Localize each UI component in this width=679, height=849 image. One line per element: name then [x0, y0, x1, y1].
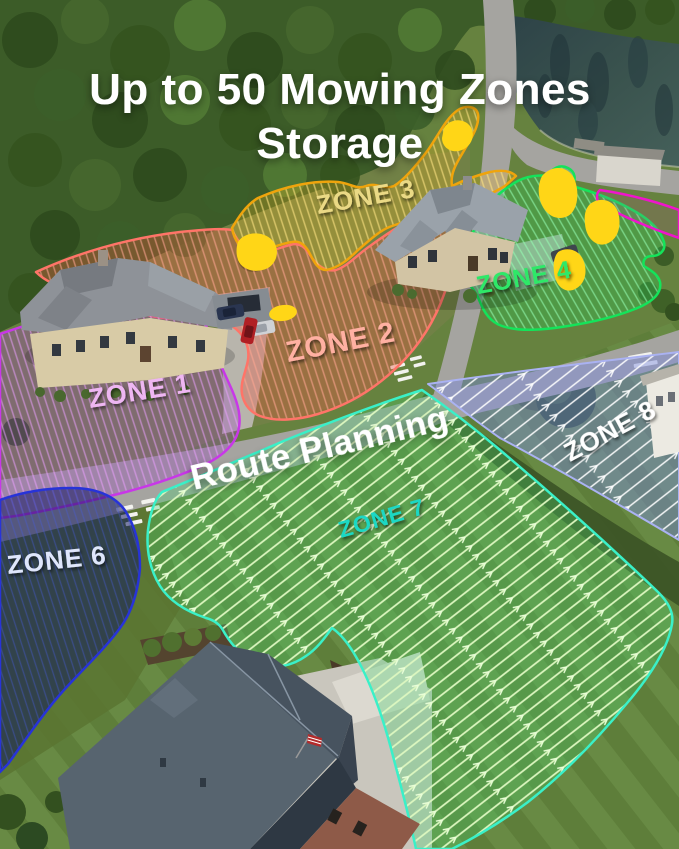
obstacle-marker: [585, 200, 620, 245]
house-1-door: [140, 346, 151, 362]
aerial-scene: ZONE 1 ZONE 2 ZONE 3 ZONE 4 ZONE 6 ZONE …: [0, 0, 679, 849]
obstacle-marker: [237, 233, 277, 270]
mower-zones-marketing-image: ZONE 1 ZONE 2 ZONE 3 ZONE 4 ZONE 6 ZONE …: [0, 0, 679, 849]
lake-shed: [594, 145, 665, 186]
title-line-2: Storage: [256, 119, 423, 168]
house-2-door: [468, 256, 478, 271]
title-line-1: Up to 50 Mowing Zones: [89, 65, 591, 114]
